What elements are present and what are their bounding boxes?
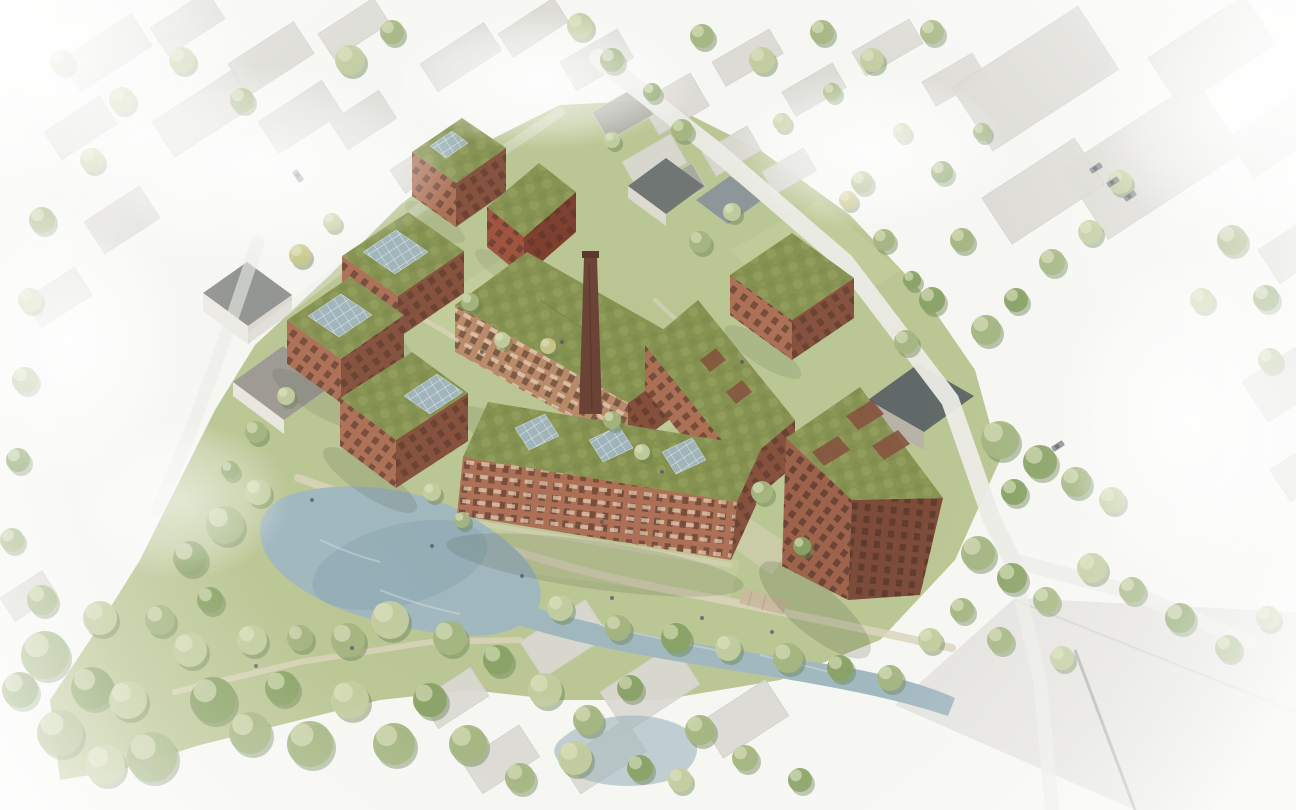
aerial-rendering (0, 0, 1296, 810)
aerial-rendering-stage (0, 0, 1296, 810)
edge-fade-vignette (0, 0, 1296, 810)
atmosphere (0, 0, 1296, 810)
